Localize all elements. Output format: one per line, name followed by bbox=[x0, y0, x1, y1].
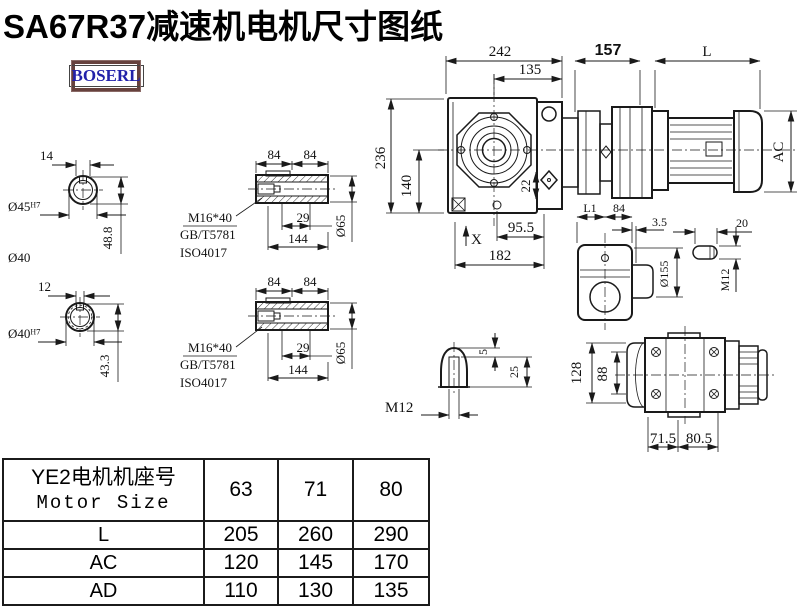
cell-L-71: 260 bbox=[278, 521, 353, 549]
label-std2-gb-t5781: GB/T5781 bbox=[180, 357, 236, 372]
dim-sleeve2-dia-65: Ø65 bbox=[333, 342, 348, 364]
label-std2-iso4017: ISO4017 bbox=[180, 375, 227, 390]
dim-key-width-12: 12 bbox=[38, 279, 51, 294]
header-cn: YE2电机机座号 bbox=[4, 465, 203, 491]
table-header-motor-size: YE2电机机座号 Motor Size bbox=[3, 459, 204, 521]
dim-front-182: 182 bbox=[489, 248, 512, 264]
cell-AD-80: 135 bbox=[353, 577, 429, 605]
cell-AC-71: 145 bbox=[278, 549, 353, 577]
table-row-AD: AD 110 130 135 bbox=[3, 577, 429, 605]
header-size-63: 63 bbox=[204, 459, 278, 521]
dim-sleeve2-144: 144 bbox=[288, 362, 308, 377]
label-bolt-m16x40: M16*40 bbox=[188, 210, 232, 225]
dim-bore-40h7: Ø40ᴴ⁷ bbox=[8, 326, 41, 341]
dim-key-depth-48-8: 48.8 bbox=[100, 227, 115, 250]
dim-sleeve-29: 29 bbox=[297, 210, 310, 225]
cell-AC-80: 170 bbox=[353, 549, 429, 577]
dim-front-242: 242 bbox=[489, 44, 512, 60]
header-size-80: 80 bbox=[353, 459, 429, 521]
view-bottom-plan: 128 88 71.5 80.5 bbox=[569, 326, 775, 452]
dim-front-22: 22 bbox=[518, 180, 533, 193]
label-x-mark: X bbox=[471, 232, 482, 248]
view-sleeve-lower: 84 84 29 144 Ø65 M16*40 GB/T5781 ISO4017 bbox=[180, 274, 357, 390]
dim-sleeve-dia-65: Ø65 bbox=[333, 215, 348, 237]
dim-sleeve2-84a: 84 bbox=[268, 274, 282, 289]
technical-drawing: 14 Ø45ᴴ⁷ 48.8 Ø40 12 Ø40ᴴ⁷ 43.3 bbox=[0, 0, 800, 456]
row-label-L: L bbox=[3, 521, 204, 549]
dim-bottom-80-5: 80.5 bbox=[686, 431, 712, 447]
view-sleeve-upper: 84 84 29 144 Ø65 M16*40 GB/T5781 ISO4017 bbox=[180, 147, 357, 260]
dim-front-95-5: 95.5 bbox=[508, 220, 534, 236]
dim-output-20: 20 bbox=[736, 216, 748, 230]
dim-plug-m12: M12 bbox=[385, 400, 413, 416]
view-output-flange: L1 84 3.5 Ø155 20 M12 bbox=[577, 201, 752, 330]
header-size-71: 71 bbox=[278, 459, 353, 521]
dim-sleeve-84a: 84 bbox=[268, 147, 282, 162]
dim-side-L: L bbox=[702, 44, 711, 60]
dim-outer-dia-40: Ø40 bbox=[8, 250, 30, 265]
view-shaft-bore-45: 14 Ø45ᴴ⁷ 48.8 Ø40 bbox=[8, 148, 128, 265]
label-bolt2-m16x40: M16*40 bbox=[188, 340, 232, 355]
view-shaft-bore-40: 12 Ø40ᴴ⁷ 43.3 bbox=[8, 279, 124, 382]
dim-bottom-71-5: 71.5 bbox=[650, 431, 676, 447]
row-label-AC: AC bbox=[3, 549, 204, 577]
dim-output-dia-155: Ø155 bbox=[657, 261, 671, 288]
dim-sleeve-84b: 84 bbox=[304, 147, 318, 162]
label-std-iso4017: ISO4017 bbox=[180, 245, 227, 260]
label-std-gb-t5781: GB/T5781 bbox=[180, 227, 236, 242]
dim-bottom-128: 128 bbox=[569, 362, 585, 385]
dim-front-140: 140 bbox=[399, 175, 415, 198]
cell-AD-63: 110 bbox=[204, 577, 278, 605]
table-row-AC: AC 120 145 170 bbox=[3, 549, 429, 577]
dim-sleeve-144: 144 bbox=[288, 231, 308, 246]
dim-output-84: 84 bbox=[613, 201, 625, 215]
dim-key-depth-43-3: 43.3 bbox=[97, 355, 112, 378]
table-header-row: YE2电机机座号 Motor Size 63 71 80 bbox=[3, 459, 429, 521]
dim-side-157: 157 bbox=[595, 42, 622, 59]
dim-output-3-5: 3.5 bbox=[652, 215, 667, 229]
cell-L-63: 205 bbox=[204, 521, 278, 549]
dim-output-m12: M12 bbox=[718, 269, 732, 292]
dim-front-236: 236 bbox=[373, 146, 389, 169]
table-row-L: L 205 260 290 bbox=[3, 521, 429, 549]
dim-front-135: 135 bbox=[519, 62, 542, 78]
dim-plug-5: 5 bbox=[476, 349, 490, 355]
dim-bore-45h7: Ø45ᴴ⁷ bbox=[8, 199, 41, 214]
dim-bottom-88: 88 bbox=[595, 367, 611, 382]
dim-output-L1: L1 bbox=[583, 201, 596, 215]
header-en: Motor Size bbox=[4, 491, 203, 515]
cell-L-80: 290 bbox=[353, 521, 429, 549]
dim-sleeve2-29: 29 bbox=[297, 340, 310, 355]
dim-side-AC: AC bbox=[771, 142, 787, 163]
cell-AC-63: 120 bbox=[204, 549, 278, 577]
row-label-AD: AD bbox=[3, 577, 204, 605]
cell-AD-71: 130 bbox=[278, 577, 353, 605]
dim-key-width-14: 14 bbox=[40, 148, 54, 163]
motor-size-table: YE2电机机座号 Motor Size 63 71 80 L 205 260 2… bbox=[2, 458, 430, 606]
dim-sleeve2-84b: 84 bbox=[304, 274, 318, 289]
dim-plug-25: 25 bbox=[507, 366, 521, 378]
view-shaft-end-plug: 5 25 M12 bbox=[385, 333, 532, 419]
view-front-assembly: 242 135 157 L AC 236 140 22 bbox=[373, 42, 798, 269]
